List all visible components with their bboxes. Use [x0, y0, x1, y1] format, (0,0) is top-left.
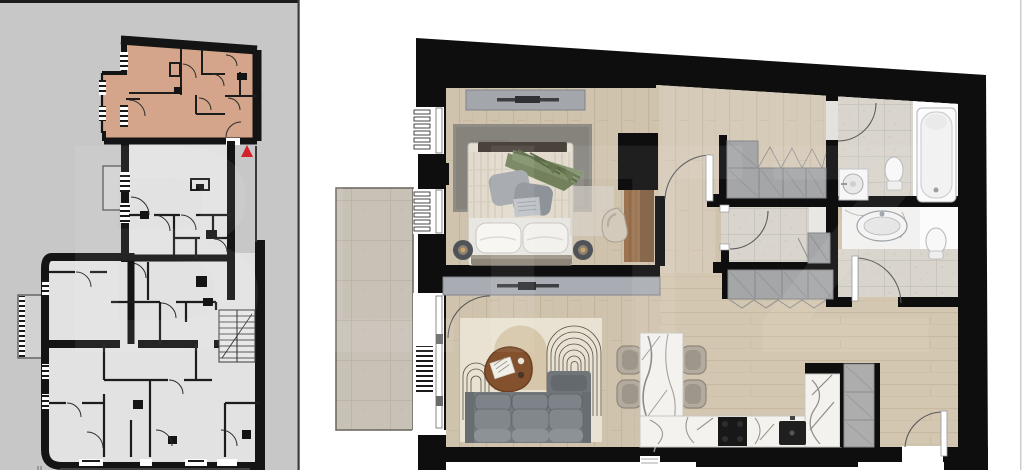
svg-text:BLITZ: BLITZ [55, 80, 945, 416]
